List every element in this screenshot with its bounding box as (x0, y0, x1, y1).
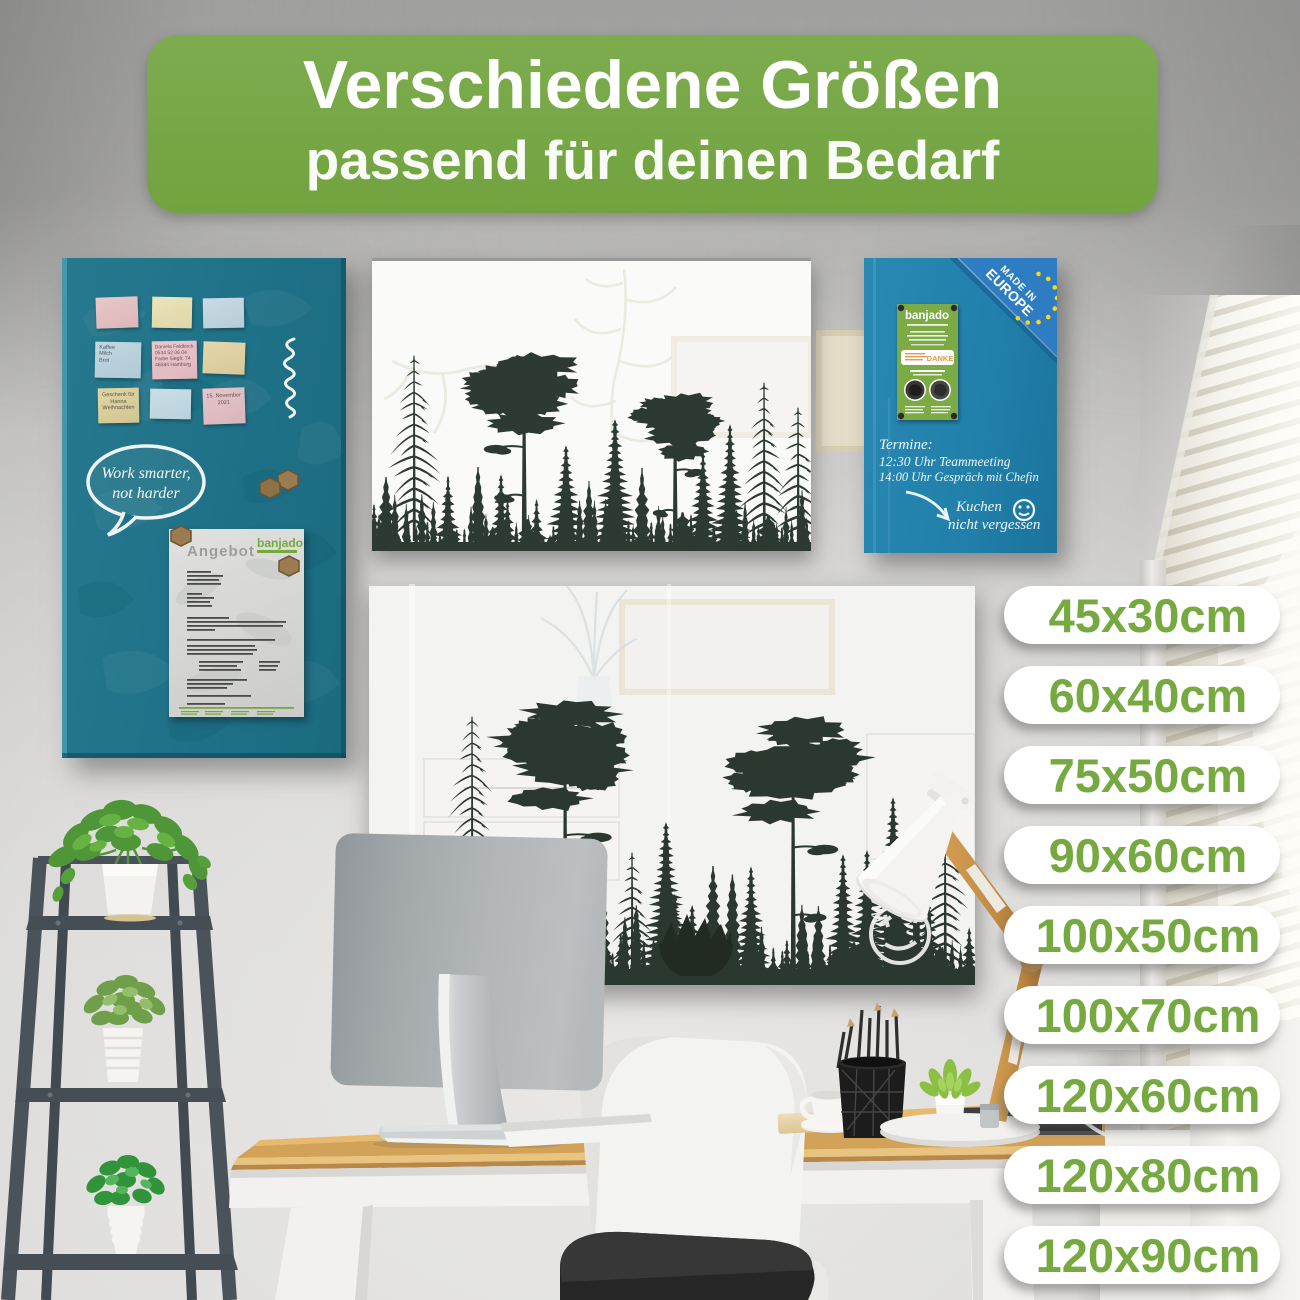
svg-text:not harder: not harder (112, 485, 180, 502)
svg-text:banjado: banjado (905, 310, 949, 322)
svg-text:DANKE: DANKE (927, 354, 954, 363)
svg-text:Work smarter,: Work smarter, (101, 465, 190, 482)
